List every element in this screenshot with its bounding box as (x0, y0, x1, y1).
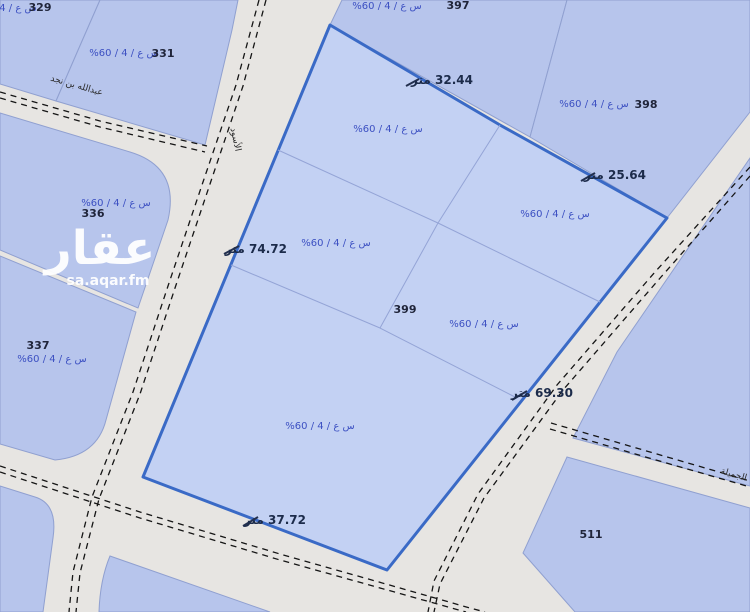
watermark-site-url: sa.aqar.fm (67, 273, 150, 289)
measurement-left-edge: 74.72 متر (224, 242, 287, 256)
selected-lot-top-zoning: س ع / 4 / 60% (353, 124, 422, 135)
parcel-329-number: 329 (29, 1, 52, 14)
map-canvas: 32.44 متر 25.64 متر 69.30 متر 37.72 متر … (0, 0, 750, 612)
measurement-bottom-edge: 37.72 متر (243, 513, 306, 527)
parcel-331-number: 331 (152, 47, 175, 60)
parcel-398-number: 398 (635, 98, 658, 111)
parcel-398-zoning: س ع / 4 / 60% (559, 99, 628, 110)
measurement-top-right-edge: 25.64 متر (583, 168, 646, 182)
parcel-southwest[interactable] (0, 486, 54, 612)
watermark-logo: عقار (43, 221, 156, 276)
parcel-397-number: 397 (447, 0, 470, 12)
parcel-337-zoning: س ع / 4 / 60% (17, 354, 86, 365)
selected-parcel-number: 399 (394, 303, 417, 316)
parcel-397-zoning: س ع / 4 / 60% (352, 1, 421, 12)
measurement-top-left-edge: 32.44 متر (410, 73, 473, 87)
parcel-336-number: 336 (82, 207, 105, 220)
measurement-right-edge: 69.30 متر (510, 386, 573, 400)
parcel-337-number: 337 (27, 339, 50, 352)
parcel-map: 32.44 متر 25.64 متر 69.30 متر 37.72 متر … (0, 0, 750, 612)
selected-lot-center-zoning: س ع / 4 / 60% (449, 319, 518, 330)
selected-lot-midleft-zoning: س ع / 4 / 60% (301, 238, 370, 249)
selected-lot-right-zoning: س ع / 4 / 60% (520, 209, 589, 220)
selected-lot-bottom-zoning: س ع / 4 / 60% (285, 421, 354, 432)
parcel-331-zoning: س ع / 4 / 60% (89, 48, 158, 59)
parcel-511-number: 511 (580, 528, 603, 541)
